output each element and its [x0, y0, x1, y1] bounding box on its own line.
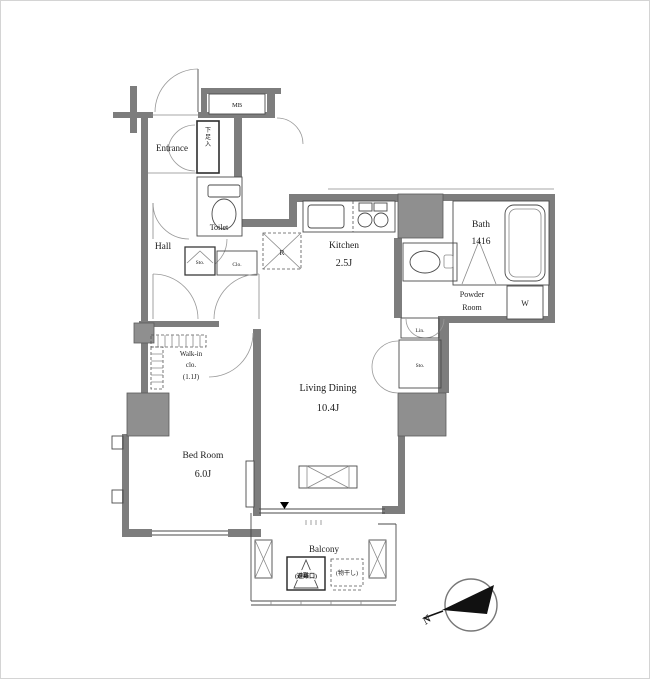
front-door-arc	[155, 69, 198, 112]
entrance-area	[148, 69, 303, 173]
wic-label-1: Walk-in	[180, 350, 203, 358]
bath-area	[453, 201, 549, 285]
linen-label: Lin.	[415, 328, 425, 334]
balcony-label: Balcony	[309, 544, 339, 554]
floorplan-drawing: MB Entrance 下足入 Toilet Hall Sto. Clo. R …	[1, 1, 650, 679]
kitchen-label: Kitchen	[329, 241, 359, 251]
bedroom-door-leaf	[246, 461, 254, 507]
evacuation-hatch-label: (避難口)	[295, 572, 317, 580]
bedroom-size-label: 6.0J	[195, 469, 212, 480]
bath-label: Bath	[472, 220, 490, 230]
storage-label: Sto.	[416, 363, 425, 369]
washbasin-bowl	[410, 251, 440, 273]
bedroom-label: Bed Room	[183, 451, 225, 461]
linen-storage-area	[372, 318, 441, 393]
shaft-right	[398, 393, 446, 436]
toilet-label: Toilet	[210, 223, 229, 232]
washbasin-counter	[403, 243, 457, 281]
hall-closet-label: Clo.	[232, 262, 242, 268]
walls	[113, 86, 555, 537]
living-dining-area	[259, 466, 385, 513]
living-size-label: 10.4J	[317, 403, 339, 414]
drying-fixture-label: (物干し)	[336, 569, 358, 577]
shoe-cabinet-label: 下足入	[205, 127, 211, 148]
kitchen-size-label: 2.5J	[336, 258, 353, 269]
walkin-closet-area	[151, 333, 253, 389]
window-marker	[280, 502, 289, 509]
shaft-left	[127, 393, 169, 436]
powder-room-label-1: Powder	[460, 290, 485, 299]
compass	[424, 579, 497, 631]
wic-label-3: (1.1J)	[183, 373, 200, 381]
meter-box-label: MB	[232, 102, 243, 109]
hall-storage-label: Sto.	[196, 260, 205, 266]
balcony-area	[251, 513, 396, 605]
kitchen-area	[263, 201, 395, 269]
living-label: Living Dining	[300, 383, 357, 394]
exterior-pier-1	[112, 436, 123, 449]
wic-door-arc	[209, 333, 253, 377]
entrance-label: Entrance	[156, 143, 188, 153]
refrigerator-label: R	[279, 248, 284, 257]
shaft-kitchen	[398, 194, 443, 238]
wic-label-2: clo.	[186, 361, 197, 369]
washer-label: W	[521, 299, 529, 308]
exterior-pier-2	[112, 490, 123, 503]
powder-room-label-2: Room	[462, 303, 482, 312]
hall-label: Hall	[155, 242, 172, 252]
corridor-door-arc	[277, 118, 303, 144]
wic-hanger-top	[151, 335, 206, 347]
bath-size-label: 1416	[472, 237, 491, 247]
floorplan-image: MB Entrance 下足入 Toilet Hall Sto. Clo. R …	[0, 0, 650, 679]
shaft-wic-top	[134, 323, 154, 343]
